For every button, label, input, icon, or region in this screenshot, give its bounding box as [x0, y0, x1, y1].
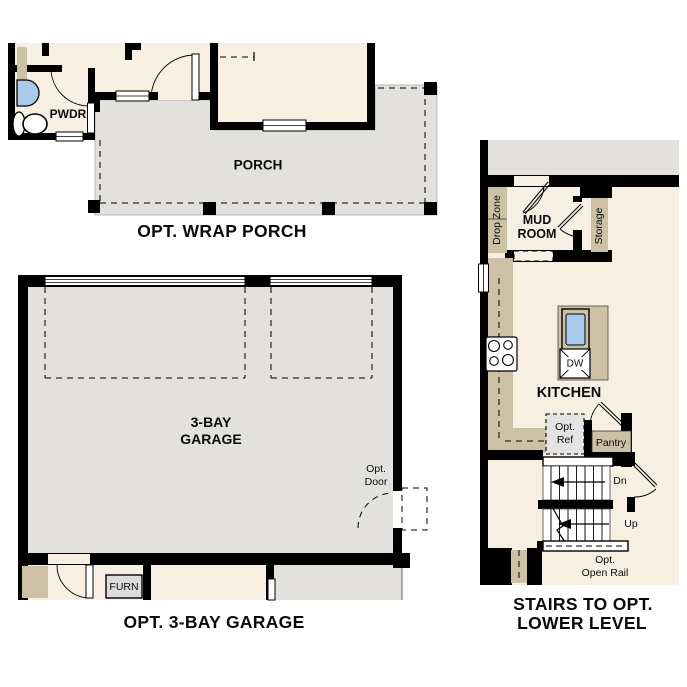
flex-room-floor [210, 43, 375, 130]
window [56, 132, 83, 141]
up-label: Up [624, 518, 638, 530]
opt-ref-label-line2: Ref [557, 434, 573, 446]
garage-label-line2: GARAGE [180, 431, 241, 447]
wall [8, 65, 62, 72]
porch-label: PORCH [234, 158, 283, 173]
furnace-label: FURN [109, 581, 138, 593]
wall [627, 497, 635, 512]
pantry-label: Pantry [596, 437, 627, 449]
mud-room-label-line2: ROOM [518, 227, 557, 241]
door-leaf [268, 579, 275, 600]
cased-opening-dashed [514, 251, 553, 261]
wall [480, 450, 543, 460]
drop-zone-label: Drop Zone [491, 195, 503, 245]
stoop-floor [274, 565, 402, 600]
wall [612, 452, 635, 466]
window [479, 264, 489, 292]
garage-strip-floor [488, 140, 679, 176]
floor-plan-page: PWDR PORCH OPT. WRAP PORCH [0, 0, 687, 687]
wall [210, 43, 218, 130]
wall [18, 275, 28, 600]
pwdr-label: PWDR [50, 107, 87, 121]
wall-stub [125, 43, 132, 60]
sink-icon [17, 80, 39, 106]
stairs-kitchen-section: DW Opt. Ref Pantry [479, 140, 680, 633]
open-rail [543, 541, 628, 551]
opt-ref-label-line1: Opt. [555, 421, 575, 433]
opt-door-label-line2: Door [365, 476, 388, 488]
toilet-icon [23, 114, 47, 134]
door-opening [573, 202, 582, 230]
porch-post [424, 202, 437, 215]
wall [580, 182, 612, 198]
stairs-caption-line1: STAIRS TO OPT. [513, 594, 653, 614]
open-rail-label-line2: Open Rail [582, 567, 629, 579]
dishwasher-icon: DW [560, 349, 590, 378]
floor-plan-drawing: PWDR PORCH OPT. WRAP PORCH [0, 0, 687, 687]
stair-railing [543, 457, 613, 466]
cabinet [22, 566, 48, 598]
porch-post [88, 200, 100, 213]
wall [95, 92, 218, 100]
pwdr-door-leaf [88, 103, 95, 133]
door-leaf [86, 565, 93, 598]
wall [480, 175, 679, 187]
garage-label-line1: 3-BAY [191, 414, 232, 430]
wall [367, 43, 375, 130]
door-opening [48, 554, 90, 564]
wall [143, 558, 151, 600]
opt-door-label-line1: Opt. [366, 463, 386, 475]
wall-post [393, 553, 410, 568]
cooktop-icon [486, 337, 517, 371]
garage-section: FURN 3-BAY GARAGE Opt. Door OPT. 3-BAY G… [18, 275, 427, 632]
wall [584, 420, 592, 455]
window [116, 91, 149, 101]
stairs-down [543, 466, 610, 500]
garage-door [270, 277, 372, 286]
wall [527, 548, 542, 585]
down-label: Dn [613, 475, 627, 487]
storage-label: Storage [593, 207, 605, 244]
wall [480, 548, 512, 585]
porch-post [322, 202, 335, 215]
stairs-caption-line2: LOWER LEVEL [517, 613, 647, 633]
garage-door [45, 277, 245, 286]
sink-icon [566, 314, 585, 345]
door-opening [514, 176, 549, 186]
wrap-porch-section: PWDR PORCH OPT. WRAP PORCH [8, 43, 437, 241]
entry-door-leaf [192, 54, 199, 100]
dishwasher-label: DW [567, 359, 584, 370]
porch-post [424, 82, 437, 95]
garage-caption: OPT. 3-BAY GARAGE [123, 612, 304, 632]
wall [538, 500, 613, 509]
mud-room-label-line1: MUD [523, 213, 551, 227]
open-rail-label-line1: Opt. [595, 554, 615, 566]
wrap-porch-caption: OPT. WRAP PORCH [137, 221, 306, 241]
window [263, 120, 306, 131]
kitchen-label: KITCHEN [537, 385, 601, 401]
porch-post [203, 202, 216, 215]
opt-door-opening [393, 491, 402, 528]
opt-door-landing-dashed [402, 488, 427, 530]
wall-stub [42, 43, 49, 56]
